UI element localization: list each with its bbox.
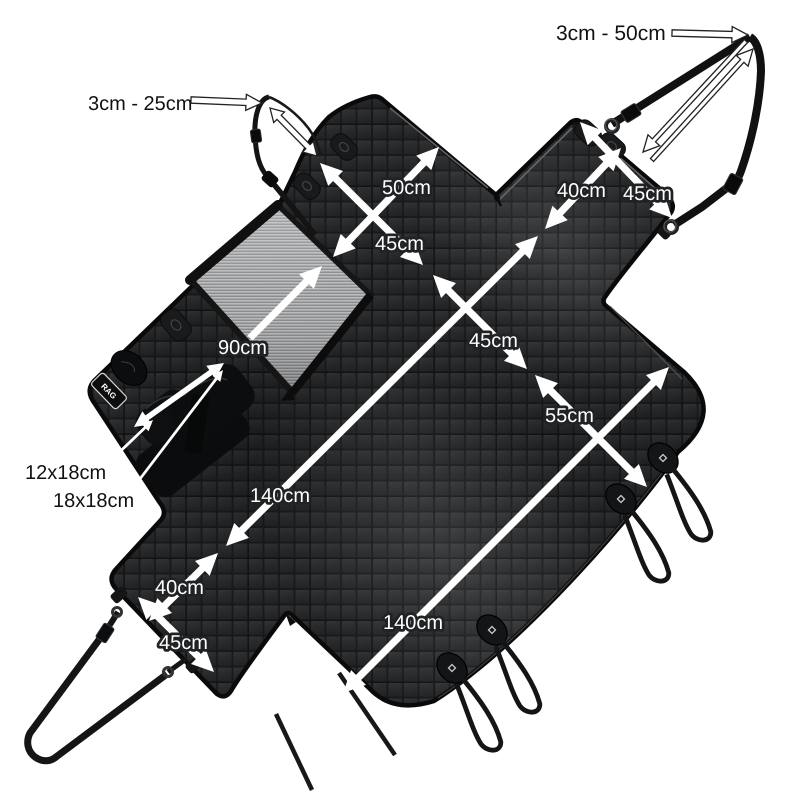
svg-text:40cm: 40cm: [557, 180, 606, 202]
svg-text:90cm: 90cm: [218, 337, 267, 359]
svg-text:18x18cm: 18x18cm: [53, 490, 134, 512]
svg-text:45cm: 45cm: [469, 330, 518, 352]
svg-text:3cm - 25cm: 3cm - 25cm: [88, 93, 192, 115]
svg-text:3cm - 50cm: 3cm - 50cm: [556, 22, 666, 45]
svg-text:45cm: 45cm: [159, 632, 208, 654]
svg-text:50cm: 50cm: [382, 177, 431, 199]
svg-text:45cm: 45cm: [623, 183, 672, 205]
svg-text:12x18cm: 12x18cm: [25, 462, 106, 484]
svg-text:55cm: 55cm: [545, 405, 594, 427]
svg-text:40cm: 40cm: [155, 577, 204, 599]
svg-text:140cm: 140cm: [383, 612, 443, 634]
svg-text:140cm: 140cm: [250, 485, 310, 507]
svg-text:45cm: 45cm: [375, 233, 424, 255]
